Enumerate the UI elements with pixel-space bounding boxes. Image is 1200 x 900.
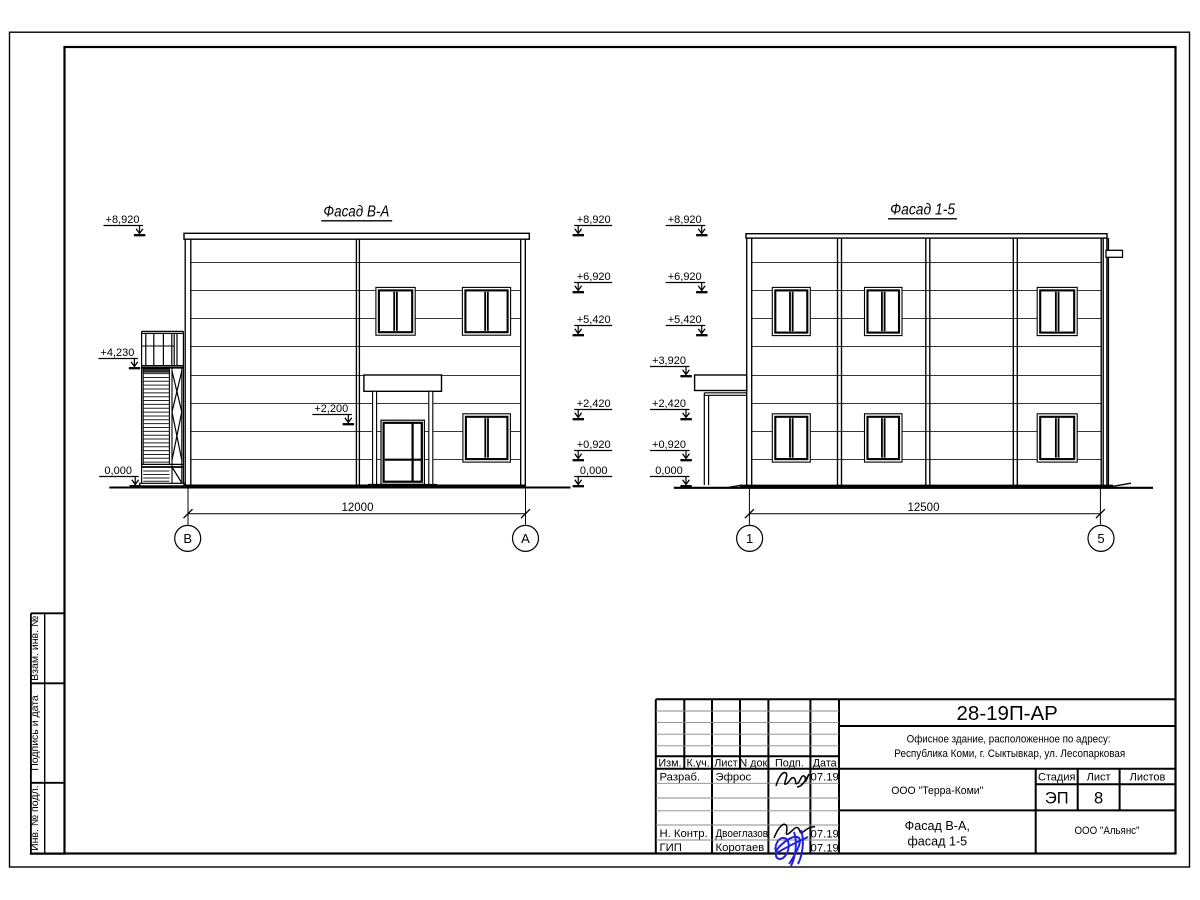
svg-text:0,000: 0,000 <box>655 465 683 477</box>
svg-text:В: В <box>183 531 192 546</box>
svg-text:0,000: 0,000 <box>104 465 132 477</box>
svg-text:0,000: 0,000 <box>580 465 608 477</box>
svg-text:+6,920: +6,920 <box>577 271 611 283</box>
svg-text:Подп.: Подп. <box>775 757 804 769</box>
svg-text:Н. Контр.: Н. Контр. <box>660 828 708 840</box>
svg-text:Разраб.: Разраб. <box>660 771 701 783</box>
svg-text:Инв. № подл.: Инв. № подл. <box>29 785 41 850</box>
svg-text:12500: 12500 <box>908 502 940 514</box>
svg-text:+2,420: +2,420 <box>652 398 686 410</box>
svg-text:Дата: Дата <box>813 757 837 769</box>
svg-text:+4,230: +4,230 <box>100 347 134 359</box>
svg-text:Фасад В-А: Фасад В-А <box>323 204 389 221</box>
svg-text:Республика Коми, г. Сыктывкар,: Республика Коми, г. Сыктывкар, ул. Лесоп… <box>894 748 1125 760</box>
svg-text:1: 1 <box>746 531 753 546</box>
svg-text:Изм.: Изм. <box>658 757 681 769</box>
svg-text:+8,920: +8,920 <box>668 214 702 226</box>
svg-text:ЭП: ЭП <box>1045 790 1069 808</box>
svg-text:Взам. инв. №: Взам. инв. № <box>29 616 41 681</box>
svg-text:Фасад В-А,: Фасад В-А, <box>905 819 970 833</box>
svg-text:фасад 1-5: фасад 1-5 <box>907 835 967 849</box>
svg-text:+3,920: +3,920 <box>652 355 686 367</box>
svg-text:Коротаев: Коротаев <box>716 842 765 854</box>
svg-text:07.19: 07.19 <box>811 842 839 854</box>
svg-text:07.19: 07.19 <box>811 772 839 784</box>
svg-text:Лист: Лист <box>1087 772 1111 784</box>
svg-text:8: 8 <box>1094 790 1103 808</box>
svg-text:Двоеглазов: Двоеглазов <box>716 828 769 840</box>
svg-text:+8,920: +8,920 <box>106 214 140 226</box>
svg-text:+0,920: +0,920 <box>577 439 611 451</box>
svg-text:N док.: N док. <box>739 757 770 769</box>
svg-text:А: А <box>521 531 530 546</box>
svg-text:Листов: Листов <box>1130 772 1166 784</box>
svg-text:К.уч.: К.уч. <box>686 757 709 769</box>
svg-text:Фасад 1-5: Фасад 1-5 <box>890 202 955 219</box>
svg-text:+6,920: +6,920 <box>668 271 702 283</box>
svg-text:Эфрос: Эфрос <box>716 771 752 783</box>
svg-text:+0,920: +0,920 <box>652 439 686 451</box>
svg-text:Офисное здание, расположенное: Офисное здание, расположенное по адресу: <box>907 734 1111 746</box>
svg-text:Лист: Лист <box>714 757 738 769</box>
svg-text:28-19П-АР: 28-19П-АР <box>957 702 1058 725</box>
svg-text:12000: 12000 <box>342 502 374 514</box>
svg-text:Подпись и дата: Подпись и дата <box>29 695 41 771</box>
svg-text:+5,420: +5,420 <box>668 314 702 326</box>
svg-text:Стадия: Стадия <box>1038 772 1076 784</box>
svg-text:5: 5 <box>1097 531 1104 546</box>
svg-text:+2,200: +2,200 <box>314 403 348 415</box>
svg-text:ООО "Альянс": ООО "Альянс" <box>1075 825 1140 837</box>
svg-text:ГИП: ГИП <box>660 842 682 854</box>
svg-text:ООО "Терра-Коми": ООО "Терра-Коми" <box>891 785 983 797</box>
svg-text:+2,420: +2,420 <box>577 398 611 410</box>
svg-text:+5,420: +5,420 <box>577 314 611 326</box>
svg-text:07.19: 07.19 <box>811 828 839 840</box>
svg-text:+8,920: +8,920 <box>577 214 611 226</box>
